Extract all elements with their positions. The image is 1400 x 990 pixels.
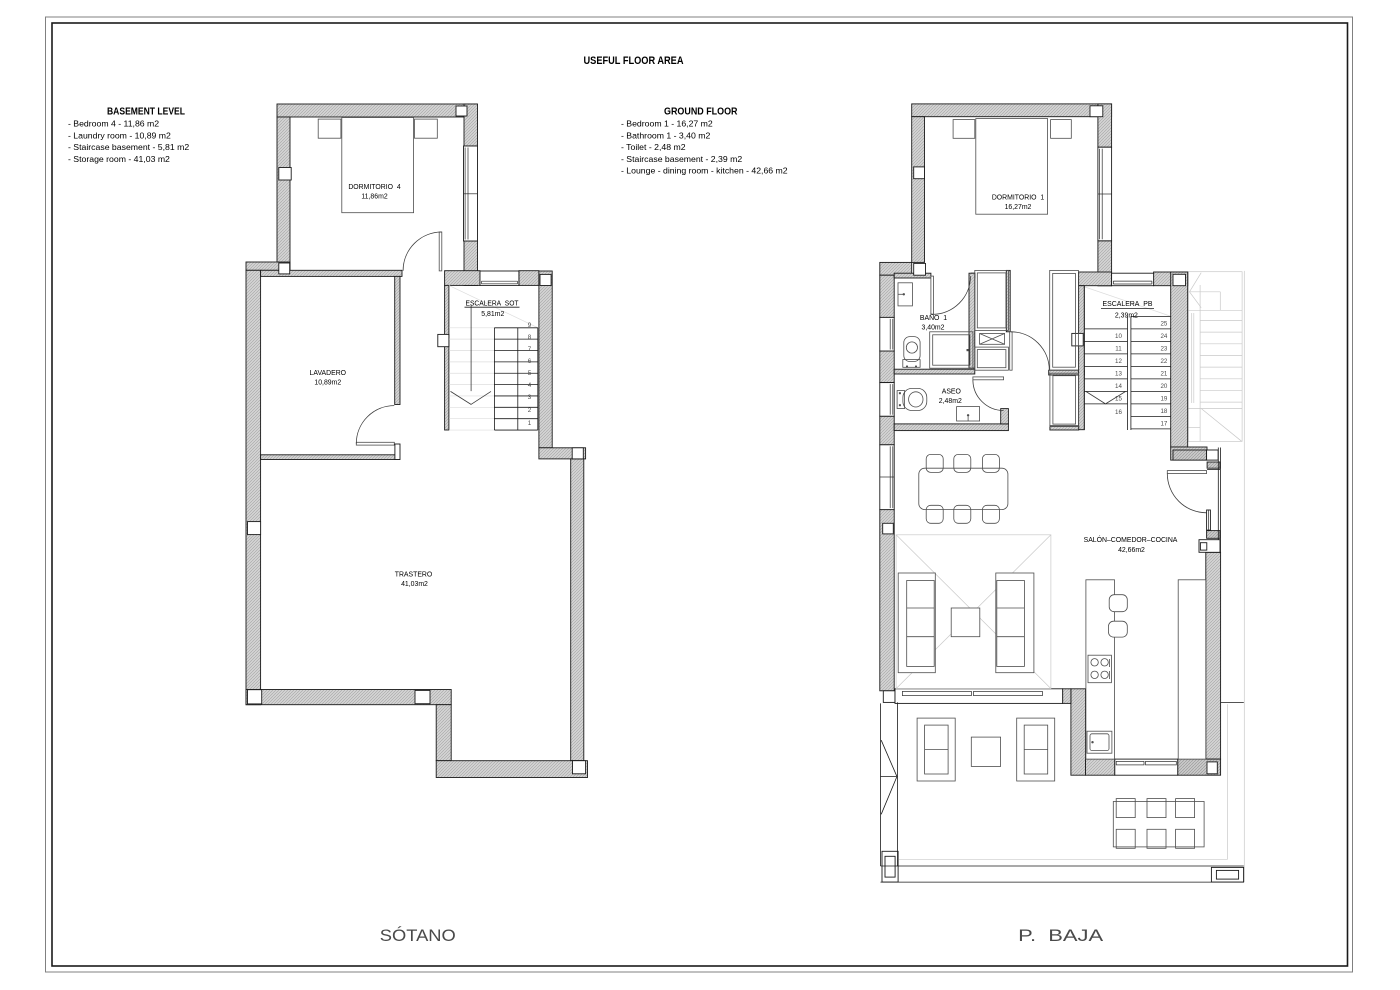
- svg-text:P. BAJA: P. BAJA: [1018, 926, 1104, 945]
- svg-text:14: 14: [1115, 383, 1122, 390]
- svg-text:3,40m2: 3,40m2: [922, 325, 945, 332]
- svg-text:USEFUL FLOOR AREA: USEFUL FLOOR AREA: [584, 55, 684, 67]
- svg-text:42,66m2: 42,66m2: [1118, 547, 1145, 554]
- svg-text:LAVADERO: LAVADERO: [310, 370, 347, 377]
- svg-text:41,03m2: 41,03m2: [401, 581, 428, 588]
- svg-text:11: 11: [1115, 346, 1122, 353]
- svg-text:7: 7: [528, 346, 532, 353]
- svg-text:2,48m2: 2,48m2: [939, 398, 962, 405]
- svg-text:DORMITORIO 1: DORMITORIO 1: [992, 195, 1044, 202]
- svg-text:8: 8: [528, 334, 532, 341]
- svg-text:11,86m2: 11,86m2: [361, 193, 387, 200]
- svg-text:22: 22: [1160, 358, 1167, 365]
- svg-text:ESCALERA PB: ESCALERA PB: [1103, 301, 1153, 308]
- svg-text:ASEO: ASEO: [942, 388, 962, 395]
- svg-text:2,39m2: 2,39m2: [1115, 312, 1138, 319]
- svg-text:- Laundry room - 10,89 m2: - Laundry room - 10,89 m2: [68, 130, 171, 140]
- svg-text:GROUND FLOOR: GROUND FLOOR: [664, 107, 738, 118]
- svg-text:20: 20: [1160, 383, 1167, 390]
- svg-text:- Bedroom 4 - 11,86 m2: - Bedroom 4 - 11,86 m2: [68, 119, 159, 129]
- svg-text:5,81m2: 5,81m2: [481, 311, 504, 318]
- svg-text:TRASTERO: TRASTERO: [395, 572, 433, 579]
- svg-text:6: 6: [528, 358, 532, 365]
- svg-text:ESCALERA SOT: ESCALERA SOT: [466, 300, 520, 307]
- svg-text:3: 3: [528, 394, 532, 401]
- svg-text:10,89m2: 10,89m2: [314, 379, 341, 386]
- svg-text:2: 2: [528, 407, 532, 414]
- svg-text:15: 15: [1115, 396, 1122, 403]
- svg-text:4: 4: [528, 382, 532, 389]
- svg-text:13: 13: [1115, 371, 1122, 378]
- svg-text:SALÓN–COMEDOR–COCINA: SALÓN–COMEDOR–COCINA: [1084, 535, 1178, 544]
- svg-text:25: 25: [1160, 321, 1167, 328]
- svg-text:16: 16: [1115, 409, 1122, 416]
- svg-text:5: 5: [528, 370, 532, 377]
- svg-text:- Bathroom 1 - 3,40 m2: - Bathroom 1 - 3,40 m2: [621, 130, 710, 140]
- svg-text:19: 19: [1160, 396, 1167, 403]
- svg-text:- Lounge - dining room - kitch: - Lounge - dining room - kitchen - 42,66…: [621, 166, 788, 176]
- svg-text:- Toilet - 2,48 m2: - Toilet - 2,48 m2: [621, 142, 686, 152]
- svg-text:10: 10: [1115, 333, 1122, 340]
- svg-text:BASEMENT LEVEL: BASEMENT LEVEL: [107, 107, 186, 118]
- svg-text:DORMITORIO 4: DORMITORIO 4: [348, 184, 400, 191]
- svg-text:- Staircase basement - 5,81 m2: - Staircase basement - 5,81 m2: [68, 142, 189, 152]
- svg-text:23: 23: [1160, 346, 1167, 353]
- svg-text:- Storage room - 41,03 m2: - Storage room - 41,03 m2: [68, 154, 170, 164]
- svg-text:18: 18: [1160, 408, 1167, 415]
- svg-text:16,27m2: 16,27m2: [1005, 204, 1032, 211]
- svg-text:SÓTANO: SÓTANO: [380, 926, 456, 945]
- svg-text:24: 24: [1160, 333, 1167, 340]
- svg-text:12: 12: [1115, 358, 1122, 365]
- svg-text:21: 21: [1160, 371, 1167, 378]
- svg-text:17: 17: [1160, 421, 1167, 428]
- svg-text:- Bedroom 1 - 16,27 m2: - Bedroom 1 - 16,27 m2: [621, 119, 713, 129]
- svg-text:- Staircase basement - 2,39 m2: - Staircase basement - 2,39 m2: [621, 154, 742, 164]
- svg-text:1: 1: [528, 420, 532, 427]
- svg-text:9: 9: [528, 322, 532, 329]
- svg-text:BAÑO 1: BAÑO 1: [920, 313, 947, 322]
